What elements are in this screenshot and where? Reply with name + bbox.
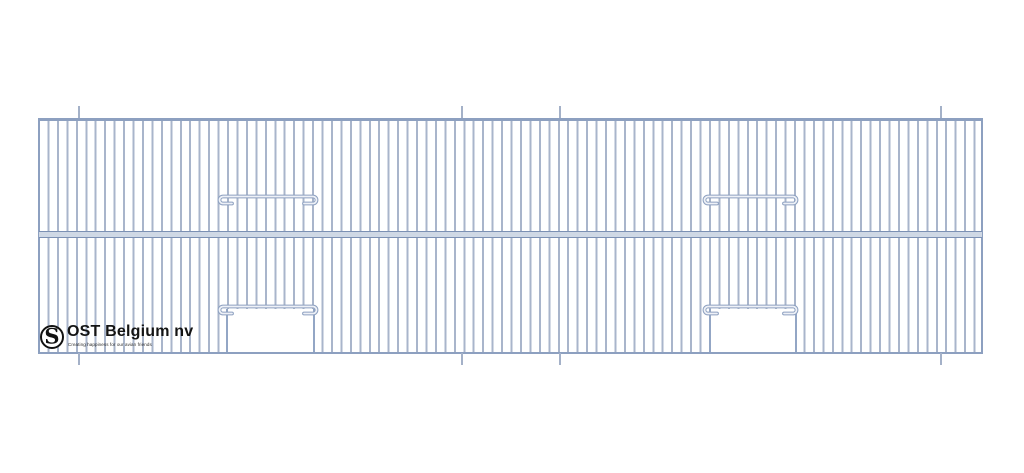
mid-rail [39, 231, 982, 238]
tick-mark-top [461, 106, 463, 118]
logo-tagline: Creating happiness for our avian friends [68, 342, 193, 347]
logo: S OST Belgium nv Creating happiness for … [40, 323, 193, 349]
logo-monogram: S [44, 326, 59, 347]
ost-logo-icon: S [40, 325, 64, 349]
upper-right-door-wire [701, 193, 800, 207]
logo-name: OST Belgium nv [67, 323, 193, 340]
upper-left-door-wire [216, 193, 320, 207]
logo-texts: OST Belgium nv Creating happiness for ou… [67, 323, 193, 347]
tick-mark-top [78, 106, 80, 118]
lower-left-door-wire [216, 303, 320, 317]
tick-mark-bottom [78, 353, 80, 365]
drawing-canvas: S OST Belgium nv Creating happiness for … [0, 0, 1024, 473]
tick-mark-top [559, 106, 561, 118]
tick-mark-bottom [559, 353, 561, 365]
tick-mark-bottom [461, 353, 463, 365]
tick-mark-top [940, 106, 942, 118]
lower-right-door-wire [701, 303, 800, 317]
tick-mark-bottom [940, 353, 942, 365]
